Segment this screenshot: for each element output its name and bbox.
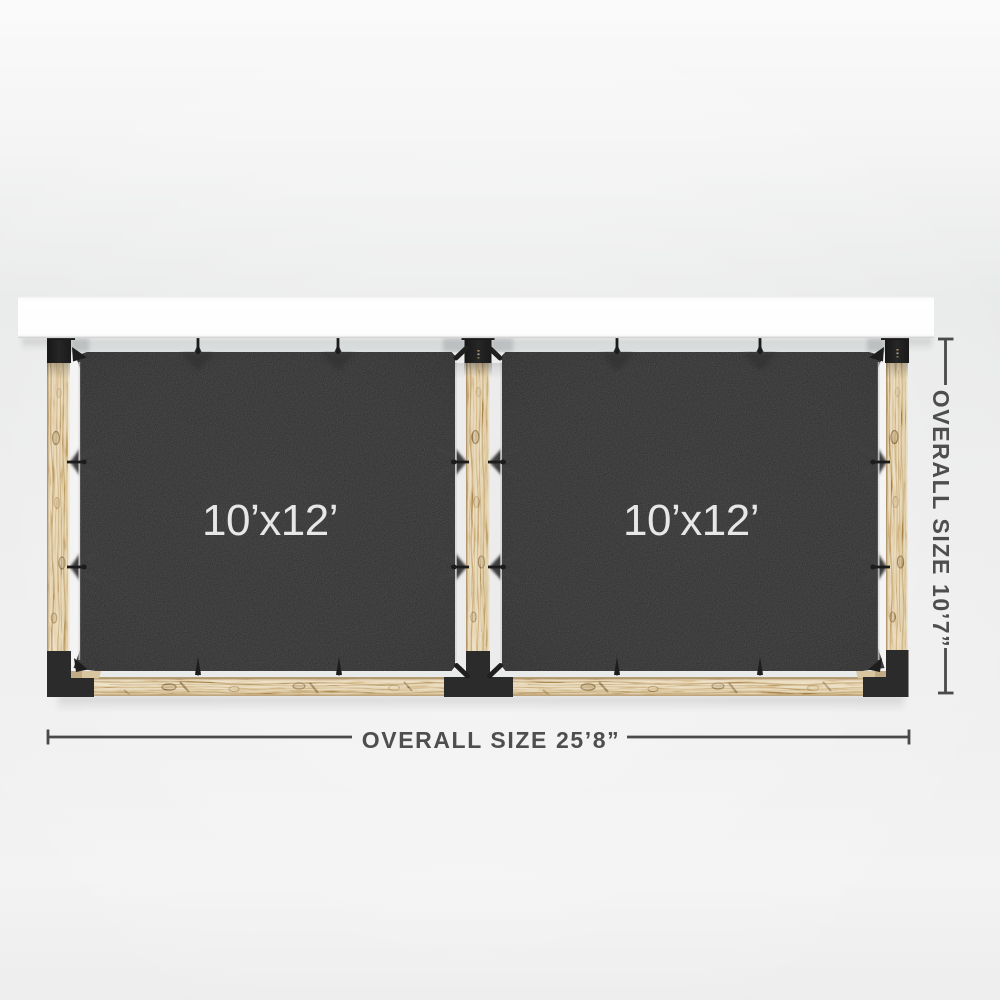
svg-text:OVERALL SIZE 10’7”: OVERALL SIZE 10’7” xyxy=(928,390,954,648)
svg-text:10’x12’: 10’x12’ xyxy=(623,496,759,545)
svg-text:10’x12’: 10’x12’ xyxy=(202,496,338,545)
svg-text:OVERALL SIZE 25’8”: OVERALL SIZE 25’8” xyxy=(362,727,620,753)
